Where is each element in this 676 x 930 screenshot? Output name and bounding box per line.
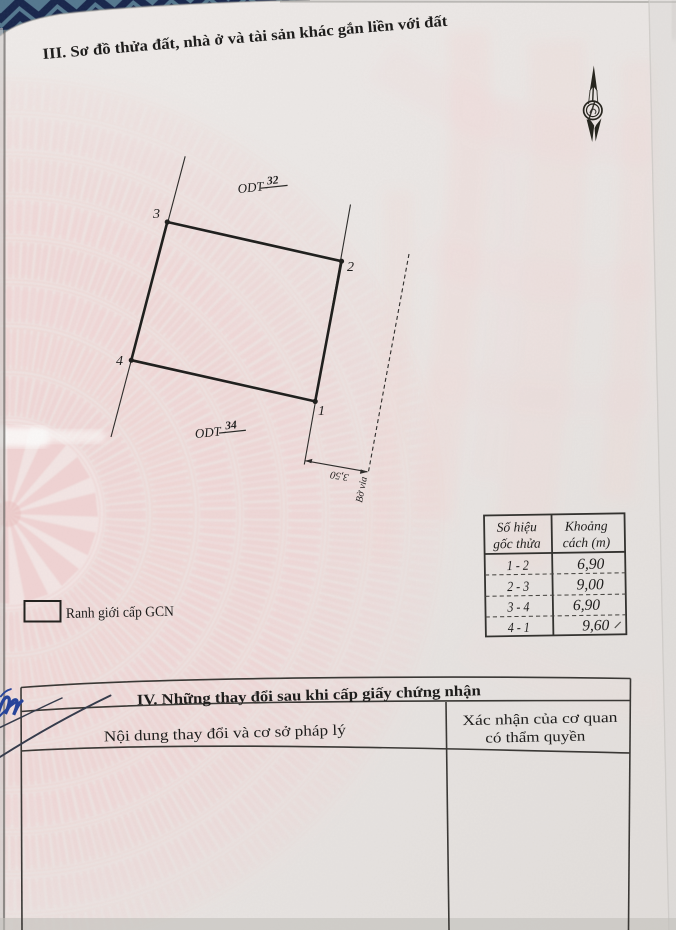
svg-text:34: 34 xyxy=(224,419,238,432)
svg-text:9,60: 9,60 xyxy=(582,617,610,634)
svg-text:3 - 4: 3 - 4 xyxy=(506,600,529,615)
svg-text:ODT: ODT xyxy=(194,423,222,441)
svg-text:Xác nhận của cơ quan: Xác nhận của cơ quan xyxy=(462,710,618,729)
svg-text:cách (m): cách (m) xyxy=(563,535,611,551)
svg-text:Ranh giới cấp GCN: Ranh giới cấp GCN xyxy=(66,604,175,622)
svg-text:gốc thửa: gốc thửa xyxy=(493,536,541,552)
svg-text:1: 1 xyxy=(318,404,325,419)
svg-text:Số hiệu: Số hiệu xyxy=(497,519,538,535)
svg-text:4 - 1: 4 - 1 xyxy=(508,621,530,636)
svg-text:4: 4 xyxy=(116,354,123,369)
svg-text:Khoảng: Khoảng xyxy=(564,518,608,534)
svg-text:2: 2 xyxy=(347,260,354,275)
svg-text:ODT: ODT xyxy=(237,178,265,196)
svg-text:6,90: 6,90 xyxy=(573,597,601,614)
svg-text:32: 32 xyxy=(265,174,279,187)
svg-text:1 - 2: 1 - 2 xyxy=(507,559,529,574)
svg-text:6,90: 6,90 xyxy=(577,556,605,573)
svg-text:3: 3 xyxy=(152,207,160,222)
svg-text:có thẩm quyền: có thẩm quyền xyxy=(485,729,586,747)
svg-text:9,00: 9,00 xyxy=(576,576,604,593)
svg-text:2 - 3: 2 - 3 xyxy=(507,580,529,595)
